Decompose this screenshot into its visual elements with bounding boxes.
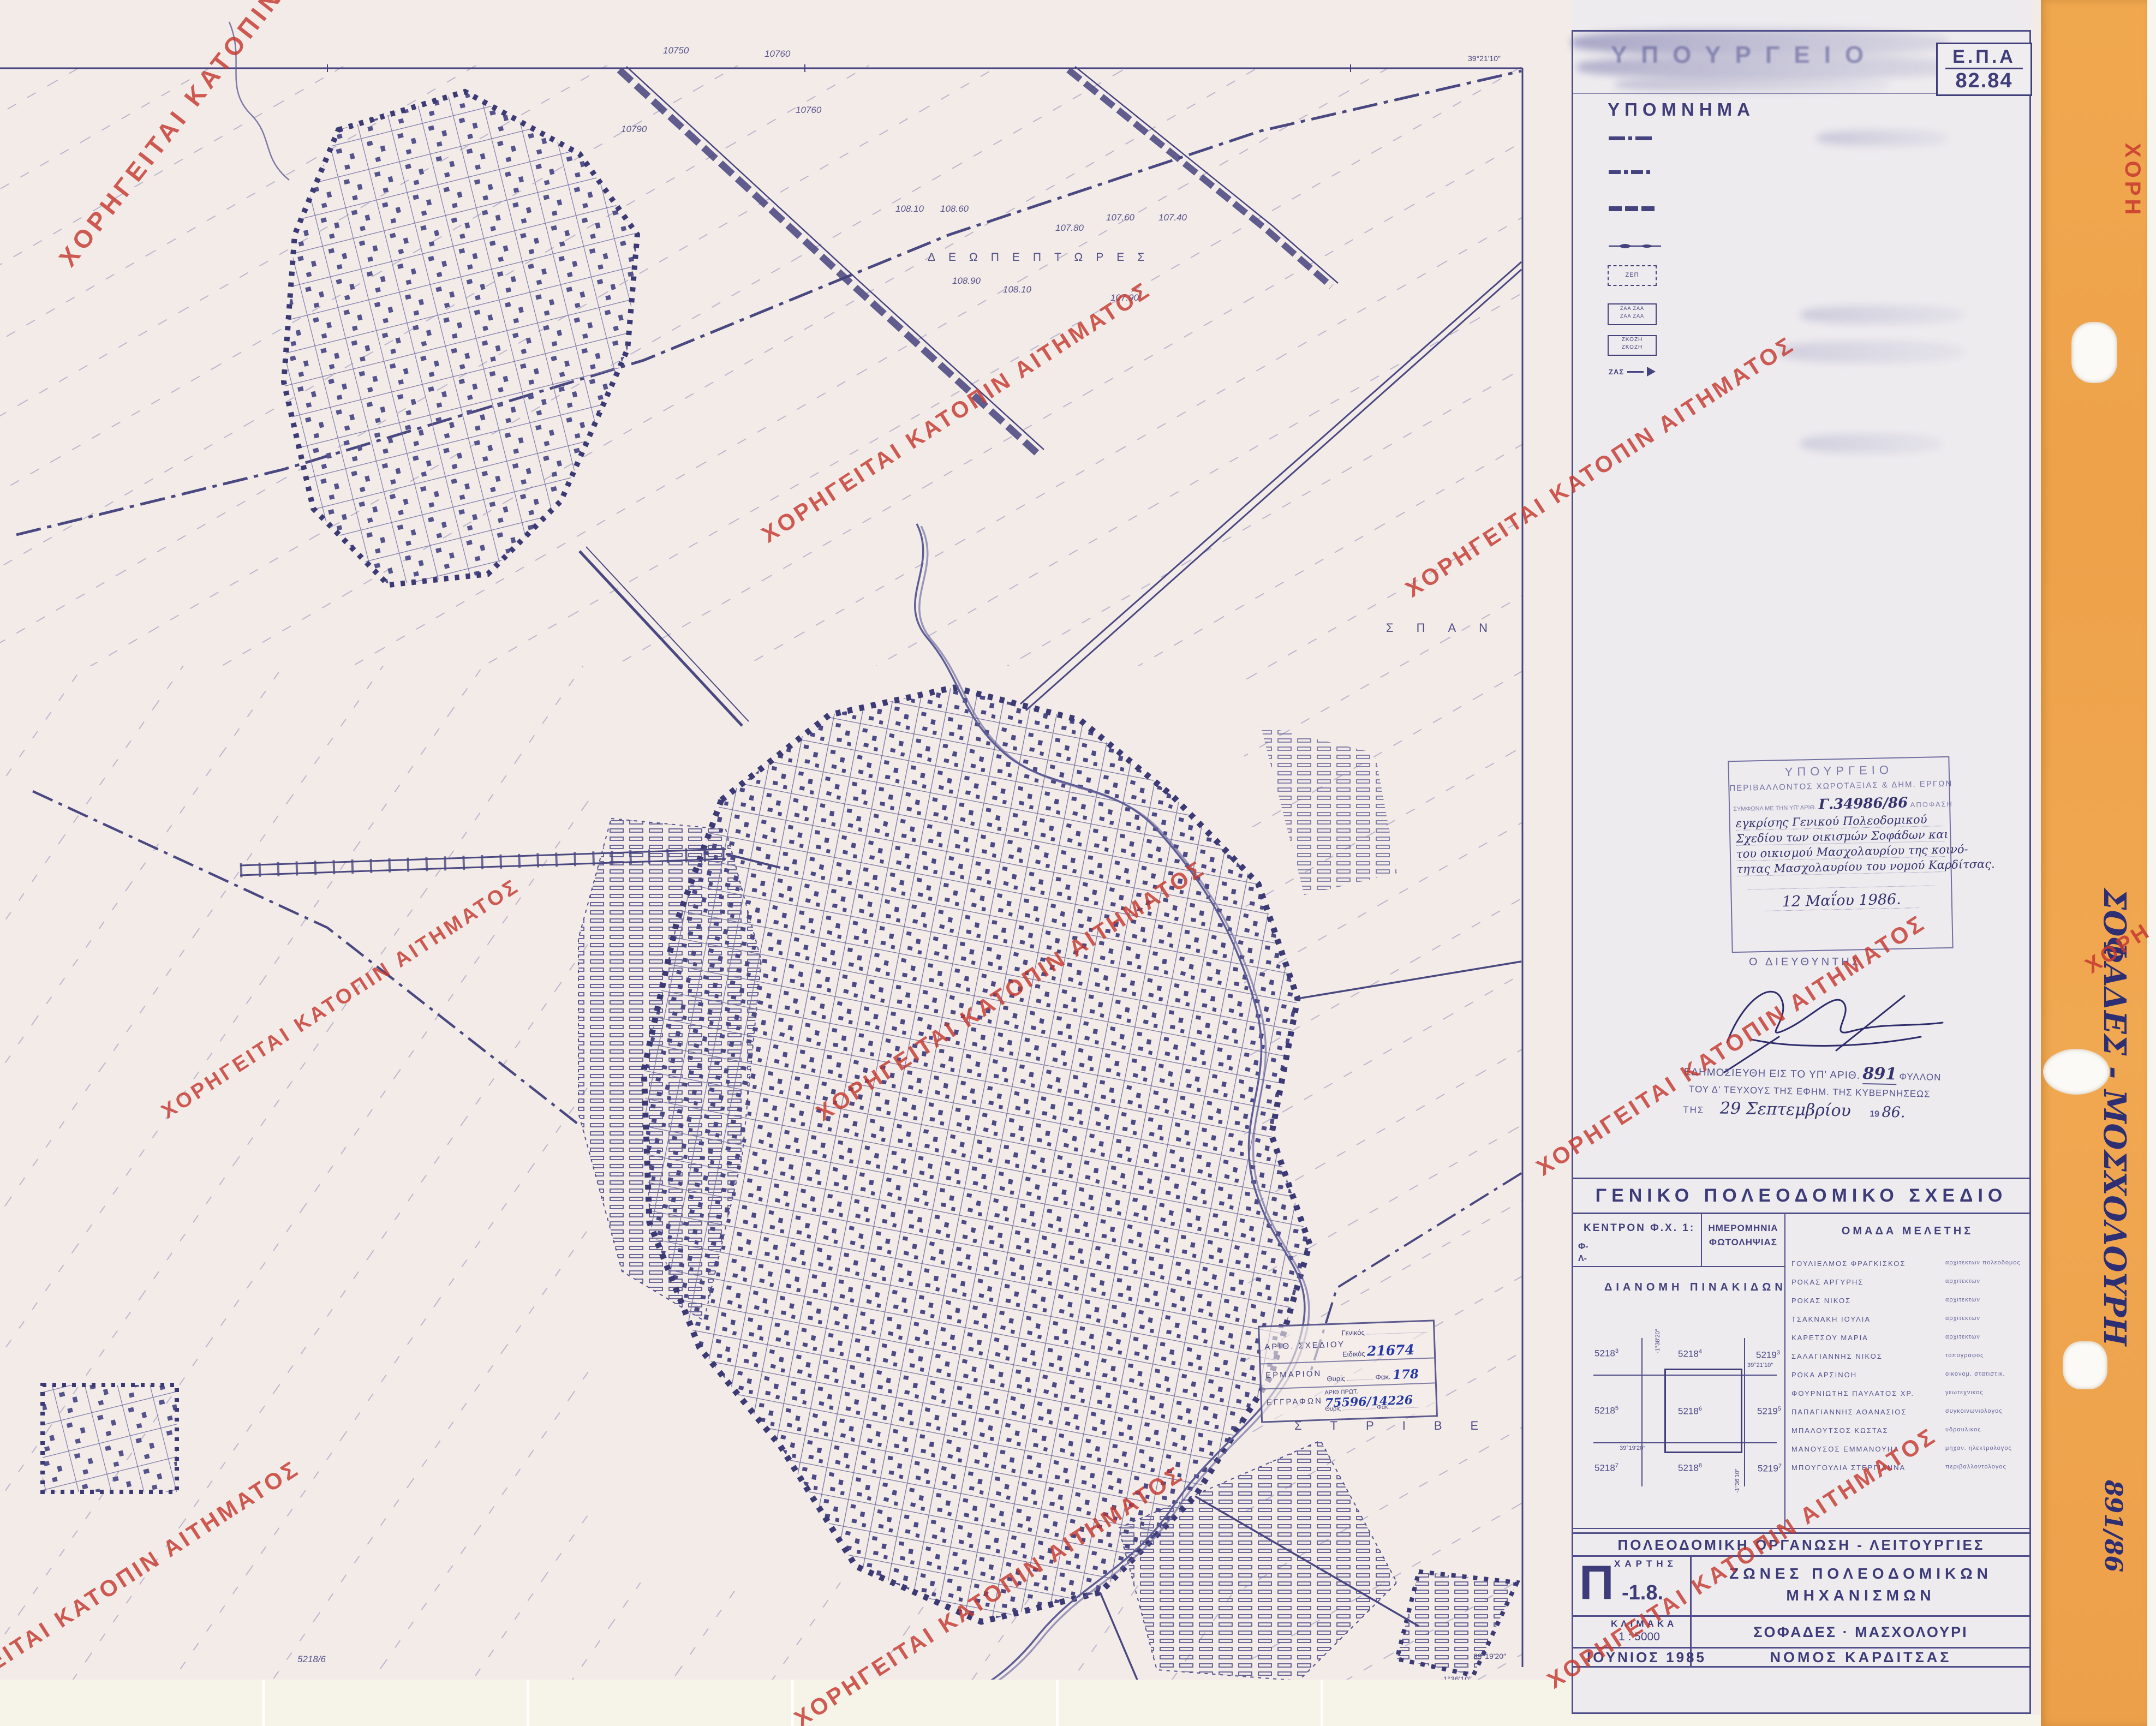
southwest-settlement xyxy=(43,1385,177,1492)
legend-symbol-zaa-box: ΖΑΑ ΖΑΑ ΖΑΑ ΖΑΑ xyxy=(1608,303,1657,325)
scan-smudge xyxy=(1801,306,1964,324)
svg-text:108.10: 108.10 xyxy=(895,204,924,214)
scan-smudge xyxy=(1801,434,1943,453)
team-member-role: περιβαλλοντολογος xyxy=(1945,1464,2006,1472)
team-row: ΠΑΠΑΓΙΑΝΝΗΣ ΑΘΑΝΑΣΙΟΣσυγκοινωνιολογος xyxy=(1791,1408,2029,1416)
publication-note: ΕΔΗΜΟΣΙΕΥΘΗ ΕΙΣ ΤΟ ΥΠ' ΑΡΙΘ. 891 ΦΥΛΛΟΝ … xyxy=(1683,1060,1940,1122)
zep-box-label: ΖΕΠ xyxy=(1626,272,1639,278)
legend-symbol-dashed xyxy=(1609,206,1661,211)
sheet-cell: 52197 xyxy=(1758,1463,1782,1474)
punch-hole xyxy=(2071,322,2117,383)
sheet-cell: 52184 xyxy=(1678,1348,1702,1360)
svg-text:107.60: 107.60 xyxy=(1106,212,1135,223)
registry-thyris-label: Θυρίς xyxy=(1327,1374,1345,1383)
svg-text:108.60: 108.60 xyxy=(940,204,969,214)
legend-symbol-zas-arrow: ΖΑΣ xyxy=(1609,367,1661,377)
team-row: ΦΟΥΡΝΙΩΤΗΣ ΠΑΥΛΑΤΟΣ ΧΡ.γεωτεχνικος xyxy=(1791,1389,2029,1397)
coord-top-right: 39°21'10″ xyxy=(1468,54,1501,63)
team-member-role: οικονομ. στατιστικ. xyxy=(1945,1371,2005,1379)
place-name-south: ΣΤΡΙΒΕ xyxy=(1294,1419,1507,1432)
zaa-box-label: ΖΑΑ ΖΑΑ xyxy=(1609,312,1656,320)
svg-text:10750: 10750 xyxy=(663,45,689,56)
stamp-date: 12 Μαΐου 1986. xyxy=(1764,891,1919,911)
svg-text:10760: 10760 xyxy=(765,49,791,59)
sheet-coord-left: -1°38'20″ xyxy=(1655,1329,1661,1353)
team-col-header: ΟΜΑΔΑ ΜΕΛΕΤΗΣ xyxy=(1785,1225,2029,1238)
zkoz-box-label: ΖΚΟΖΗ xyxy=(1609,344,1656,351)
svg-text:108.90: 108.90 xyxy=(952,276,981,286)
kentron-f: Φ- xyxy=(1578,1242,1588,1252)
registry-row2-fields: Θυρίς Φακ. 178 xyxy=(1327,1366,1419,1384)
legend-symbol-lens-line xyxy=(1609,240,1661,252)
zaa-box-label: ΖΑΑ ΖΑΑ xyxy=(1609,304,1656,312)
team-row: ΡΟΚΑΣ ΑΡΓΥΡΗΣαρχιτεκτων xyxy=(1791,1278,2029,1286)
date-col-header: ΗΜΕΡΟΜΗΝΙΑ ΦΩΤΟΛΗΨΙΑΣ xyxy=(1702,1221,1784,1250)
epa-number: 82.84 xyxy=(1938,69,2030,93)
zas-arrow-icon xyxy=(1647,367,1656,377)
sheet-cell: 52195 xyxy=(1757,1406,1781,1417)
team-member-name: ΡΟΚΑΣ ΑΡΓΥΡΗΣ xyxy=(1791,1278,1945,1286)
team-member-role: γεωτεχνικος xyxy=(1945,1389,1984,1397)
epa-label: Ε.Π.Α xyxy=(1945,46,2023,69)
registry-fak2-label: Φακ. xyxy=(1377,1404,1390,1411)
team-member-name: ΦΟΥΡΝΙΩΤΗΣ ΠΑΥΛΑΤΟΣ ΧΡ. xyxy=(1791,1389,1945,1397)
sheet-cell: 52186 xyxy=(1678,1406,1702,1417)
date-col-line1: ΗΜΕΡΟΜΗΝΙΑ xyxy=(1702,1221,1784,1235)
dianomi-label: ΔΙΑΝΟΜΗ ΠΙΝΑΚΙΔΩΝ xyxy=(1604,1281,1787,1294)
legend-symbol-dashdot xyxy=(1609,136,1661,140)
map-code-label: ΧΑΡΤΗΣ xyxy=(1614,1558,1677,1569)
team-member-role: μηχαν. ηλεκτρολογος xyxy=(1945,1445,2012,1453)
coord-bottom-lat: 39°19'20″ xyxy=(1473,1652,1506,1661)
team-member-name: ΚΑΡΕΤΣΟΥ ΜΑΡΙΑ xyxy=(1791,1334,1945,1342)
team-member-name: ΓΟΥΛΙΕΛΜΟΣ ΦΡΑΓΚΙΣΚΟΣ xyxy=(1791,1259,1945,1268)
registry-generic-label: Γενικός xyxy=(1341,1328,1365,1337)
team-member-role: αρχιτεκτων xyxy=(1945,1278,1980,1286)
scan-smudge xyxy=(1817,130,1948,146)
registry-stamp: ΑΡΙΘ. ΣΧΕΔΙΟΥ Γενικός Ειδικός 21674 ΕΡΜΑ… xyxy=(1258,1319,1438,1423)
publication-year-hand: 86. xyxy=(1882,1104,1906,1121)
team-row: ΜΠΟΥΓΟΥΛΙΑ ΣΤΕΡΓΙΑΝΝΑπεριβαλλοντολογος xyxy=(1791,1464,2029,1472)
publication-gazette-number: 891 xyxy=(1862,1064,1897,1085)
stamp-blank-line xyxy=(1748,880,1934,889)
scan-smudge xyxy=(1779,341,1964,363)
team-row: ΓΟΥΛΙΕΛΜΟΣ ΦΡΑΓΚΙΣΚΟΣαρχιτεκτων πολεοδομ… xyxy=(1791,1259,2029,1268)
team-row: ΡΟΚΑ ΑΡΣΙΝΟΗοικονομ. στατιστικ. xyxy=(1791,1371,2029,1379)
team-row: ΤΣΑΚΝΑΚΗ ΙΟΥΛΙΑαρχιτεκτων xyxy=(1791,1315,2029,1323)
registry-specific-value: 21674 xyxy=(1366,1342,1414,1359)
team-member-name: ΣΑΛΑΓΙΑΝΝΗΣ ΝΙΚΟΣ xyxy=(1791,1352,1945,1360)
publication-line2: ΤΟΥ Δ' ΤΕΥΧΟΥΣ ΤΗΣ ΕΦΗΜ. ΤΗΣ ΚΥΒΕΡΝΗΣΕΩΣ xyxy=(1689,1084,1940,1100)
scan-smudge xyxy=(1577,56,1975,79)
sheet-cell: 52185 xyxy=(1594,1405,1619,1417)
punch-hole xyxy=(2063,1341,2107,1389)
team-member-name: ΡΟΚΑΣ ΝΙΚΟΣ xyxy=(1791,1297,1945,1305)
scanner-band xyxy=(0,1680,1572,1726)
binder-strip xyxy=(2041,0,2147,1726)
prefecture: ΝΟΜΟΣ ΚΑΡΔΙΤΣΑΣ xyxy=(1692,1649,2030,1666)
svg-text:107.80: 107.80 xyxy=(1055,223,1084,233)
svg-text:107.40: 107.40 xyxy=(1158,212,1187,223)
registry-thyris-blank xyxy=(1347,1379,1373,1381)
watermark-fragment: ΧΟΡΗ xyxy=(2120,143,2145,218)
team-member-role: τοπογραφος xyxy=(1945,1352,1984,1360)
team-member-name: ΡΟΚΑ ΑΡΣΙΝΟΗ xyxy=(1791,1371,1945,1379)
stamp-ref-suffix: ΑΠΟΦΑΣΗ xyxy=(1910,800,1954,809)
registry-fak-label: Φακ. xyxy=(1375,1372,1391,1381)
strip-number-handwritten: 891/86 xyxy=(2099,1480,2127,1572)
legend-title: ΥΠΟΜΝΗΜΑ xyxy=(1608,99,1755,120)
kentron-l: Λ- xyxy=(1578,1254,1587,1264)
team-row: ΣΑΛΑΓΙΑΝΝΗΣ ΝΙΚΟΣτοπογραφος xyxy=(1791,1352,2029,1360)
legend-symbol-zkoz-box: ΖΚΟΖΗ ΖΚΟΖΗ xyxy=(1608,335,1657,356)
sheet-right-margin xyxy=(2147,0,2156,1726)
epa-box: Ε.Π.Α 82.84 xyxy=(1936,43,2032,96)
area-name: ΣΟΦΑΔΕΣ · ΜΑΣΧΟΛΟΥΡΙ xyxy=(1692,1624,2030,1641)
registry-generic: Γενικός xyxy=(1341,1326,1426,1337)
registry-generic-blank xyxy=(1366,1332,1426,1335)
registry-thyris2-label: Θυρίς xyxy=(1325,1406,1341,1413)
zas-label: ΖΑΣ xyxy=(1609,368,1624,376)
stamp-hand-line: εγκρίσης Γενικού Πολεοδομικού xyxy=(1736,813,1944,831)
central-town xyxy=(644,688,1310,1622)
scan-smudge xyxy=(1615,77,1888,92)
legend-symbol-zep-box: ΖΕΠ xyxy=(1608,265,1657,286)
place-name-north: ΔΕΩΠΕΠΤΩΡΕΣ xyxy=(928,251,1157,264)
scan-smudge xyxy=(1572,29,1948,56)
registry-specific: Ειδικός 21674 xyxy=(1342,1342,1414,1360)
stamp-ref-prefix: ΣΥΜΦΩΝΑ ΜΕ ΤΗΝ ΥΠ' ΑΡΙΘ. xyxy=(1733,804,1816,813)
registry-fak-value: 178 xyxy=(1392,1366,1419,1382)
scanned-map-sheet: ΔΕΩΠΕΠΤΩΡΕΣ ΣΠΑΝ ΣΤΡΙΒΕ 10750 10760 1076… xyxy=(0,0,2156,1726)
legend-symbol-dashdotdot xyxy=(1609,170,1661,174)
sheet-grid-highlight xyxy=(1664,1369,1742,1453)
stamp-department: ΠΕΡΙΒΑΛΛΟΝΤΟΣ ΧΩΡΟΤΑΞΙΑΣ & ΔΗΜ. ΕΡΓΩΝ xyxy=(1729,779,1949,793)
registry-row3-label: ΕΓΓΡΑΦΩΝ xyxy=(1267,1396,1323,1408)
sheet-cell: 52193 xyxy=(1756,1349,1780,1361)
stamp-ref-line: ΣΥΜΦΩΝΑ ΜΕ ΤΗΝ ΥΠ' ΑΡΙΘ. Γ.34986/86 ΑΠΟΦ… xyxy=(1733,794,1946,815)
publication-date-hand: 29 Σεπτεμβρίου xyxy=(1720,1098,1852,1120)
stamp-hand-line: τητας Μασχολαυρίου του νομού Καρδίτσας. xyxy=(1736,858,1945,876)
team-member-role: συγκοινωνιολογος xyxy=(1945,1408,2003,1416)
stamp-hand-line: του οικισμού Μασχολαυρίου της κοινό- xyxy=(1736,843,1945,861)
svg-text:10790: 10790 xyxy=(621,124,647,134)
team-member-role: αρχιτεκτων xyxy=(1945,1334,1980,1342)
place-name-east: ΣΠΑΝ xyxy=(1386,621,1510,635)
stamp-ref-number: Γ.34986/86 xyxy=(1818,795,1908,813)
publication-line3-prefix: ΤΗΣ xyxy=(1683,1104,1705,1115)
date-col-line2: ΦΩΤΟΛΗΨΙΑΣ xyxy=(1702,1235,1784,1250)
svg-text:108.10: 108.10 xyxy=(1003,284,1032,295)
scanner-band xyxy=(1572,1715,2041,1726)
team-member-name: ΤΣΑΚΝΑΚΗ ΙΟΥΛΙΑ xyxy=(1791,1315,1945,1323)
stamp-ministry: ΥΠΟΥΡΓΕΙΟ xyxy=(1729,762,1949,780)
team-member-role: αρχιτεκτων xyxy=(1945,1315,1980,1323)
sheet-coord-bottom: 39°19'20″ xyxy=(1620,1445,1645,1452)
sheet-cell: 52183 xyxy=(1594,1348,1619,1359)
publication-year-print: 19 xyxy=(1870,1109,1879,1119)
gps-table-title: ΓΕΝΙΚΟ ΠΟΛΕΟΔΟΜΙΚΟ ΣΧΕΔΙΟ xyxy=(1572,1185,2031,1207)
team-row: ΚΑΡΕΤΣΟΥ ΜΑΡΙΑαρχιτεκτων xyxy=(1791,1334,2029,1342)
zkoz-box-label: ΖΚΟΖΗ xyxy=(1609,336,1656,344)
map-code-letter: Π xyxy=(1579,1558,1614,1606)
team-row: ΡΟΚΑΣ ΝΙΚΟΣαρχιτεκτων xyxy=(1791,1297,2029,1305)
sheet-cell: 52187 xyxy=(1594,1462,1619,1474)
registry-row1-label: ΑΡΙΘ. ΣΧΕΔΙΟΥ xyxy=(1264,1340,1345,1352)
map-canvas: ΔΕΩΠΕΠΤΩΡΕΣ ΣΠΑΝ ΣΤΡΙΒΕ 10750 10760 1076… xyxy=(0,0,1577,1726)
kentron-label: ΚΕΝΤΡΟΝ Φ.Χ. 1: xyxy=(1584,1222,1695,1234)
registry-thyris2-blank xyxy=(1342,1408,1375,1410)
svg-text:10760: 10760 xyxy=(796,105,822,115)
team-member-role: αρχιτεκτων πολεοδομος xyxy=(1945,1259,2021,1268)
registry-specific-label: Ειδικός xyxy=(1342,1349,1365,1358)
registry-fak2-blank xyxy=(1391,1407,1419,1409)
registry-row2-label: ΕΡΜΑΡΙΟΝ xyxy=(1265,1369,1322,1381)
subject-line2: ΜΗΧΑΝΙΣΜΩΝ xyxy=(1692,1587,2030,1604)
sheet-cell: 52188 xyxy=(1678,1462,1702,1474)
sheet-coord-top: 39°21'10″ xyxy=(1747,1362,1773,1369)
team-member-role: αρχιτεκτων xyxy=(1945,1297,1980,1305)
title-block-row1: ΠΟΛΕΟΔΟΜΙΚΗ ΟΡΓΑΝΩΣΗ - ΛΕΙΤΟΥΡΓΙΕΣ xyxy=(1572,1537,2031,1554)
team-member-role: υδραυλικος xyxy=(1945,1426,1981,1435)
stamp-hand-line: Σχεδίου των οικισμών Σοφάδων και xyxy=(1736,828,1944,846)
sheet-coord-right: -1°36'10″ xyxy=(1734,1468,1741,1493)
publication-line1-suffix: ΦΥΛΛΟΝ xyxy=(1899,1071,1941,1083)
svg-text:5218/6: 5218/6 xyxy=(297,1654,326,1664)
team-member-name: ΠΑΠΑΓΙΑΝΝΗΣ ΑΘΑΝΑΣΙΟΣ xyxy=(1791,1408,1945,1416)
